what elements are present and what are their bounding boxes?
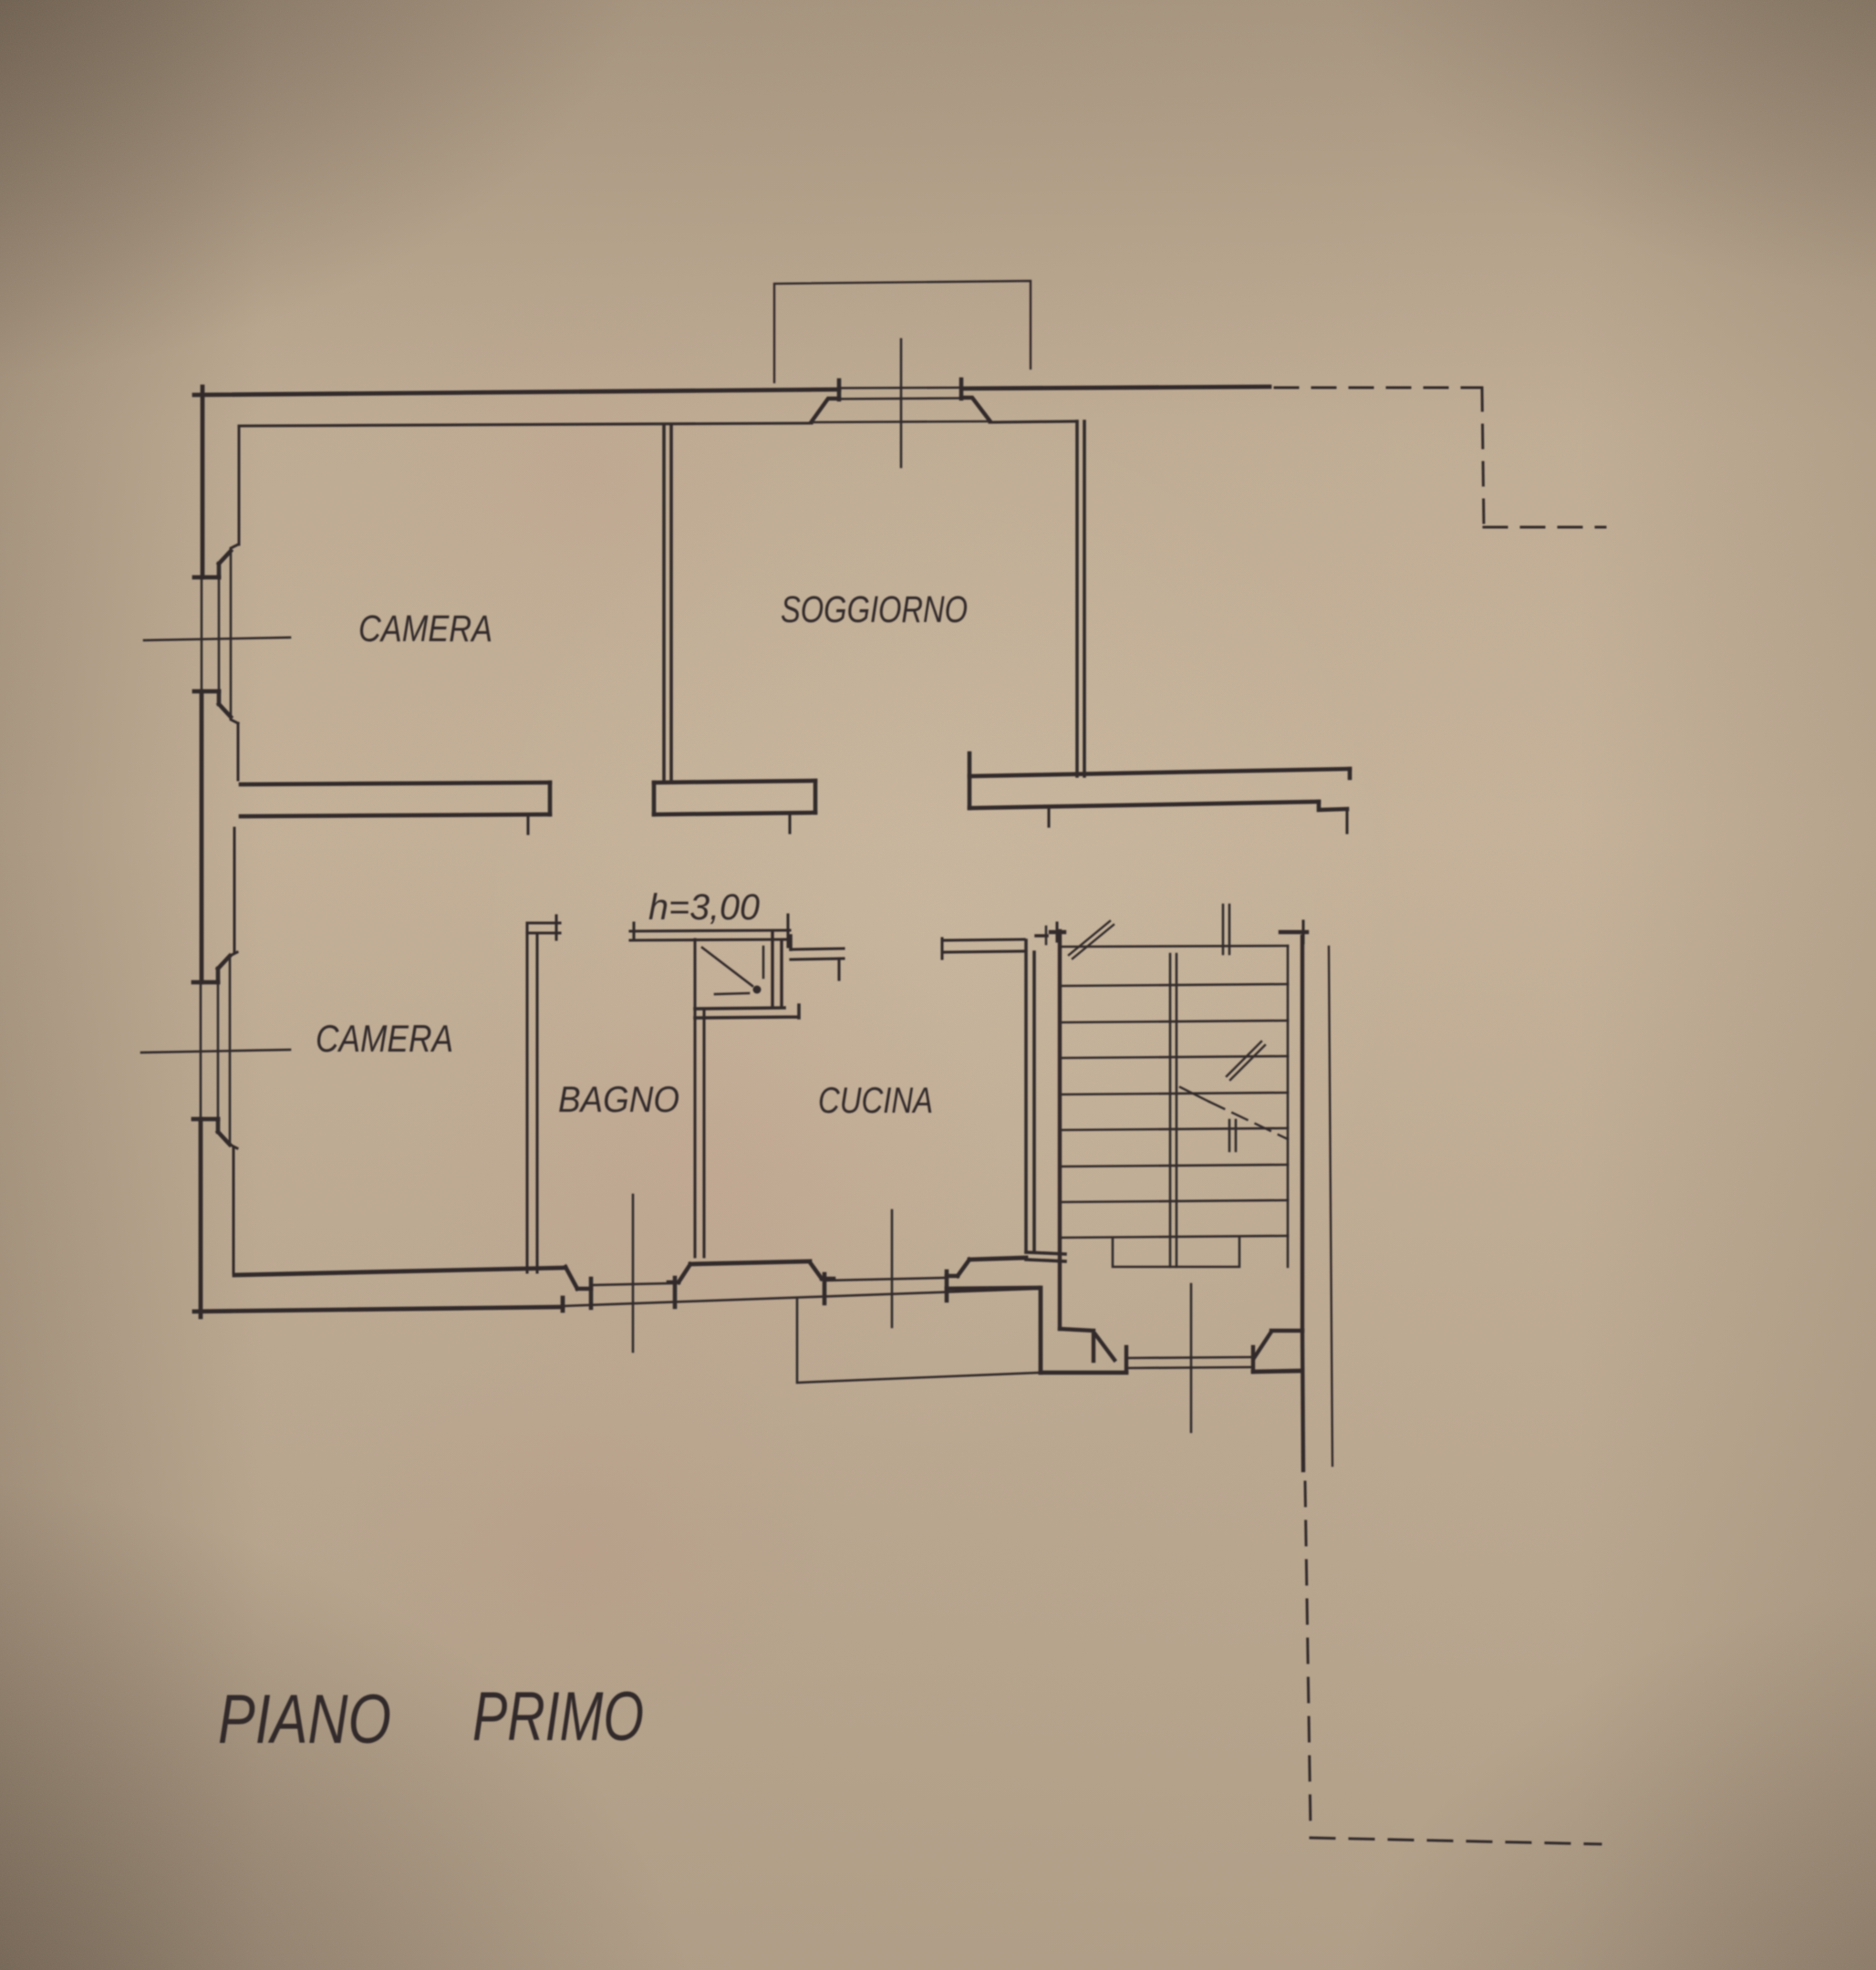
svg-text:PRIMO: PRIMO <box>472 1678 644 1756</box>
svg-text:PIANO: PIANO <box>218 1681 391 1758</box>
svg-text:SOGGIORNO: SOGGIORNO <box>781 588 968 630</box>
svg-text:CAMERA: CAMERA <box>316 1017 453 1060</box>
svg-text:BAGNO: BAGNO <box>558 1080 679 1120</box>
svg-text:CAMERA: CAMERA <box>358 607 492 649</box>
svg-text:CUCINA: CUCINA <box>818 1081 933 1121</box>
svg-text:h=3,00: h=3,00 <box>648 887 760 928</box>
